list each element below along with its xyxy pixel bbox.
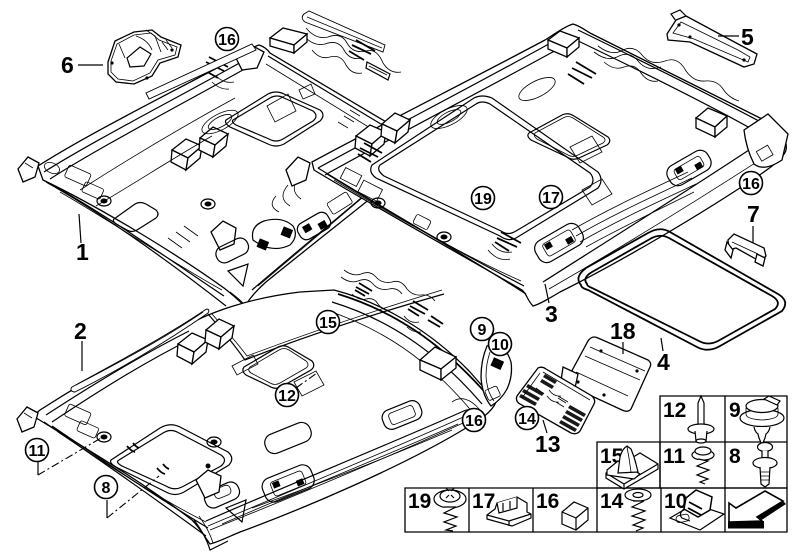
- svg-text:7: 7: [747, 201, 760, 227]
- svg-text:6: 6: [61, 52, 74, 78]
- svg-text:12: 12: [278, 388, 296, 405]
- svg-text:4: 4: [657, 349, 670, 375]
- svg-text:14: 14: [518, 411, 536, 428]
- svg-text:16: 16: [465, 413, 483, 430]
- svg-text:8: 8: [729, 445, 741, 468]
- svg-text:11: 11: [663, 445, 686, 468]
- svg-text:17: 17: [542, 190, 560, 207]
- svg-text:17: 17: [472, 490, 495, 513]
- svg-text:16: 16: [218, 32, 236, 49]
- svg-text:2: 2: [74, 318, 87, 344]
- svg-text:15: 15: [319, 315, 337, 332]
- svg-text:1: 1: [76, 239, 89, 265]
- svg-text:3: 3: [545, 301, 558, 327]
- svg-text:10: 10: [491, 337, 509, 354]
- svg-text:14: 14: [600, 490, 624, 513]
- svg-text:5: 5: [741, 24, 754, 50]
- svg-text:9: 9: [478, 322, 487, 339]
- svg-text:13: 13: [535, 431, 561, 457]
- svg-text:8: 8: [102, 480, 111, 497]
- svg-text:11: 11: [29, 443, 46, 460]
- svg-text:16: 16: [536, 490, 559, 513]
- svg-text:19: 19: [474, 191, 492, 208]
- svg-text:16: 16: [742, 176, 760, 193]
- svg-text:19: 19: [408, 490, 431, 513]
- svg-text:9: 9: [729, 399, 741, 422]
- svg-text:12: 12: [663, 399, 686, 422]
- svg-text:18: 18: [610, 318, 636, 344]
